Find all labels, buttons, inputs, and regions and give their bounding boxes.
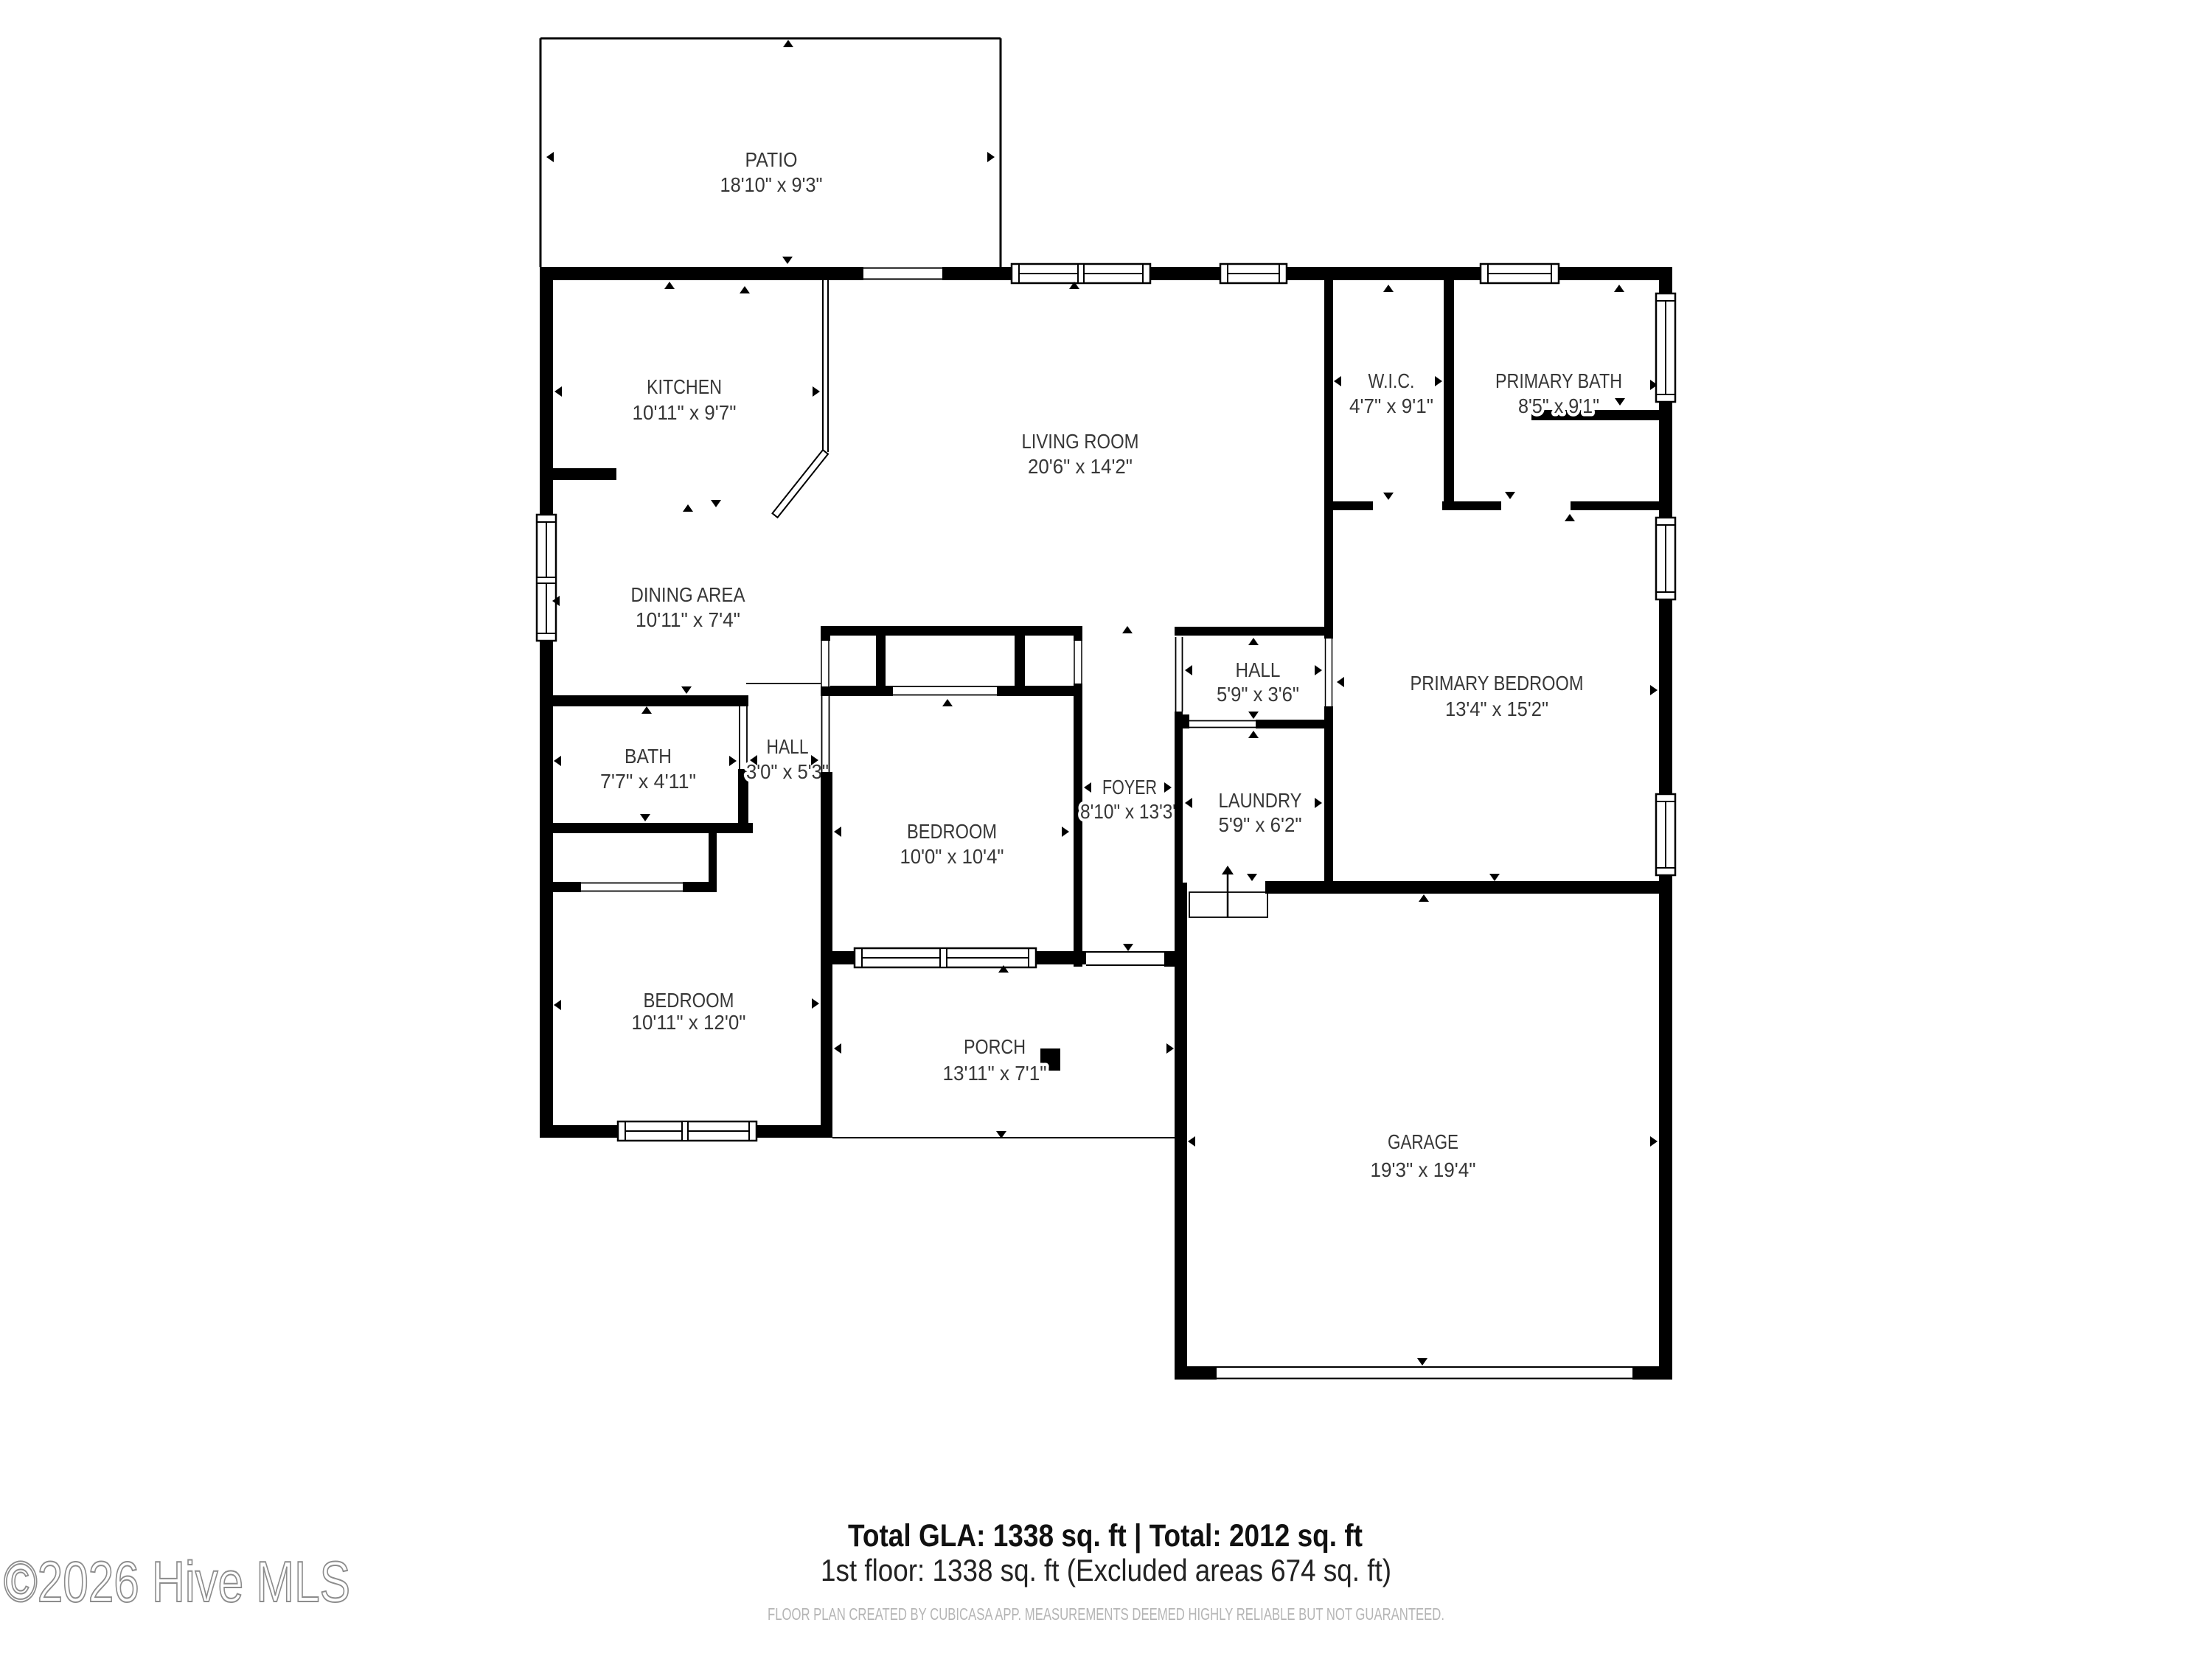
svg-text:3'0" x 5'3": 3'0" x 5'3" <box>746 760 829 783</box>
svg-text:19'3" x 19'4": 19'3" x 19'4" <box>1371 1158 1476 1181</box>
svg-text:LIVING ROOM: LIVING ROOM <box>1022 430 1139 453</box>
svg-text:5'9" x 6'2": 5'9" x 6'2" <box>1219 813 1302 836</box>
svg-text:GARAGE: GARAGE <box>1388 1130 1458 1153</box>
svg-text:PORCH: PORCH <box>964 1035 1026 1058</box>
svg-text:10'11" x 12'0": 10'11" x 12'0" <box>632 1011 746 1034</box>
svg-text:HALL: HALL <box>1236 658 1281 681</box>
svg-text:20'6" x 14'2": 20'6" x 14'2" <box>1028 455 1133 478</box>
svg-text:©2026 Hive MLS: ©2026 Hive MLS <box>4 1549 350 1614</box>
svg-text:8'5" x 9'1": 8'5" x 9'1" <box>1518 394 1599 417</box>
svg-text:7'7" x 4'11": 7'7" x 4'11" <box>600 770 696 793</box>
svg-text:BEDROOM: BEDROOM <box>644 989 734 1012</box>
svg-text:W.I.C.: W.I.C. <box>1368 369 1415 392</box>
svg-text:10'11" x 9'7": 10'11" x 9'7" <box>633 401 737 424</box>
svg-text:5'9" x 3'6": 5'9" x 3'6" <box>1217 683 1299 706</box>
svg-text:LAUNDRY: LAUNDRY <box>1219 789 1302 812</box>
svg-text:PATIO: PATIO <box>745 148 798 171</box>
svg-text:10'0" x 10'4": 10'0" x 10'4" <box>900 845 1004 868</box>
svg-text:KITCHEN: KITCHEN <box>647 375 722 398</box>
svg-text:PRIMARY BEDROOM: PRIMARY BEDROOM <box>1411 672 1584 695</box>
svg-text:13'11" x 7'1": 13'11" x 7'1" <box>943 1062 1047 1085</box>
svg-text:4'7" x 9'1": 4'7" x 9'1" <box>1349 394 1433 417</box>
svg-text:FOYER: FOYER <box>1102 776 1157 799</box>
svg-text:HALL: HALL <box>767 735 809 758</box>
svg-text:10'11" x 7'4": 10'11" x 7'4" <box>636 608 740 631</box>
svg-text:BEDROOM: BEDROOM <box>907 820 997 843</box>
svg-text:BATH: BATH <box>625 745 672 768</box>
svg-text:PRIMARY BATH: PRIMARY BATH <box>1495 369 1622 392</box>
svg-text:1st floor: 1338 sq. ft (Exclud: 1st floor: 1338 sq. ft (Excluded areas 6… <box>821 1553 1391 1587</box>
svg-text:DINING AREA: DINING AREA <box>631 583 745 606</box>
svg-text:8'10" x 13'3": 8'10" x 13'3" <box>1080 800 1179 823</box>
svg-text:FLOOR PLAN CREATED BY CUBICASA: FLOOR PLAN CREATED BY CUBICASA APP. MEAS… <box>768 1604 1444 1624</box>
svg-text:13'4" x 15'2": 13'4" x 15'2" <box>1445 698 1548 720</box>
svg-text:Total GLA: 1338 sq. ft | Total: Total GLA: 1338 sq. ft | Total: 2012 sq.… <box>848 1518 1363 1554</box>
svg-text:18'10" x 9'3": 18'10" x 9'3" <box>720 173 823 196</box>
